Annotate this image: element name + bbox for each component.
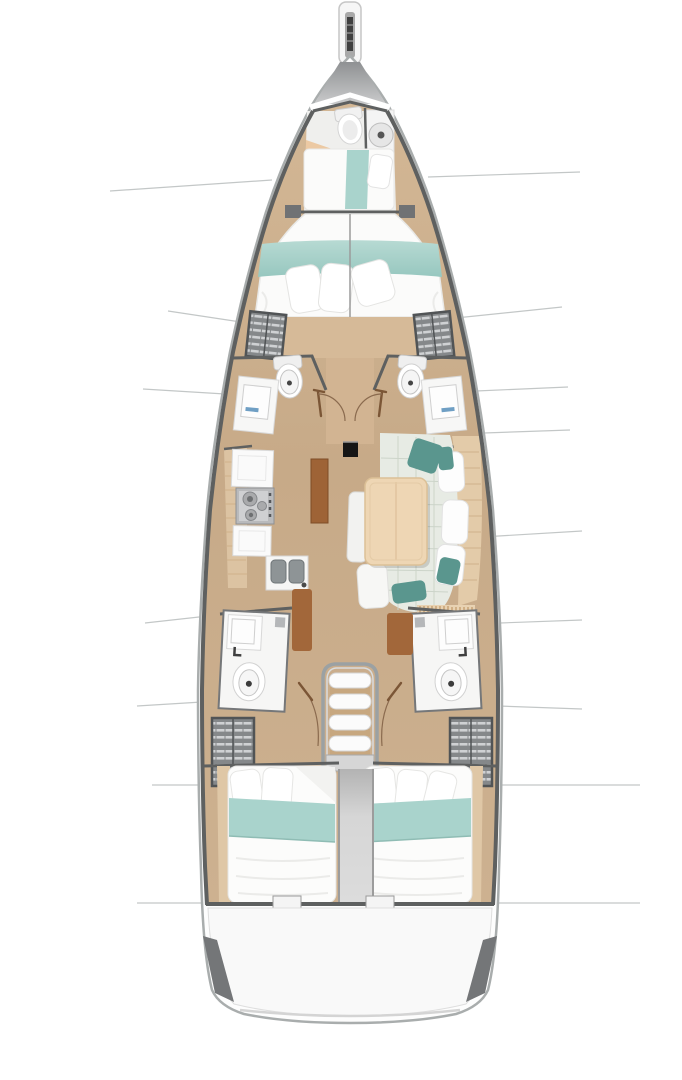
floor-plan-canvas — [0, 0, 682, 1080]
teal-cushion — [437, 446, 454, 470]
starboard-aft-head — [410, 610, 481, 711]
engine-box-corridor — [339, 769, 373, 905]
burner-large-center — [247, 496, 253, 502]
leader-line — [498, 706, 582, 709]
starboard-aft-seat — [387, 613, 413, 655]
sink-basin — [289, 560, 304, 583]
washbasin — [241, 385, 271, 420]
anchor-locker — [314, 62, 386, 104]
galley-aft-seat — [292, 589, 312, 651]
bulkhead-end — [285, 205, 301, 218]
transom-locker — [366, 896, 394, 909]
burner-small — [258, 502, 267, 511]
dining-table — [365, 478, 430, 568]
mast-base — [343, 442, 358, 457]
cabin-floor — [284, 317, 416, 358]
refrigerator-panel — [311, 459, 328, 523]
port-aft-head — [219, 610, 290, 711]
head-divider-wall — [365, 108, 366, 149]
double-sink — [266, 556, 308, 590]
wardrobe-locker — [246, 311, 287, 360]
transom — [203, 896, 497, 1016]
aft-cabins — [204, 763, 496, 905]
stair-treads — [329, 673, 371, 757]
leader-line — [145, 616, 208, 623]
leader-line — [143, 389, 225, 394]
faucet — [302, 583, 307, 588]
foredeck-anchor-locker — [310, 62, 390, 107]
bulkhead-end — [399, 205, 415, 218]
forward-berth — [304, 149, 394, 210]
transom-deck — [208, 908, 492, 1016]
transom-locker — [273, 896, 301, 909]
companionway-stairs — [323, 664, 377, 772]
wardrobe-locker — [414, 311, 455, 360]
port-aft-cabin — [228, 766, 336, 903]
teal-blanket — [229, 798, 335, 842]
leader-line — [500, 620, 582, 623]
head-lobby-floor — [326, 358, 374, 444]
leader-line — [110, 180, 272, 191]
yacht-floor-plan — [0, 0, 682, 1080]
pillow — [318, 262, 355, 313]
leader-line — [137, 702, 202, 706]
seat-pad — [357, 563, 390, 609]
leader-line — [428, 172, 580, 177]
hinge-plate — [415, 617, 426, 628]
pillow — [366, 153, 393, 189]
leader-line — [476, 387, 568, 391]
sink-basin — [271, 560, 286, 583]
anchor-chain — [347, 17, 353, 51]
teal-runner — [345, 150, 369, 209]
shower-drain — [378, 132, 385, 139]
hinge-plate — [275, 617, 286, 628]
back-cushion — [441, 500, 469, 545]
stove — [236, 488, 274, 524]
washbasin — [429, 385, 459, 420]
burner-medium-center — [249, 513, 253, 517]
teal-blanket — [365, 798, 471, 842]
starboard-aft-cabin — [364, 766, 472, 903]
